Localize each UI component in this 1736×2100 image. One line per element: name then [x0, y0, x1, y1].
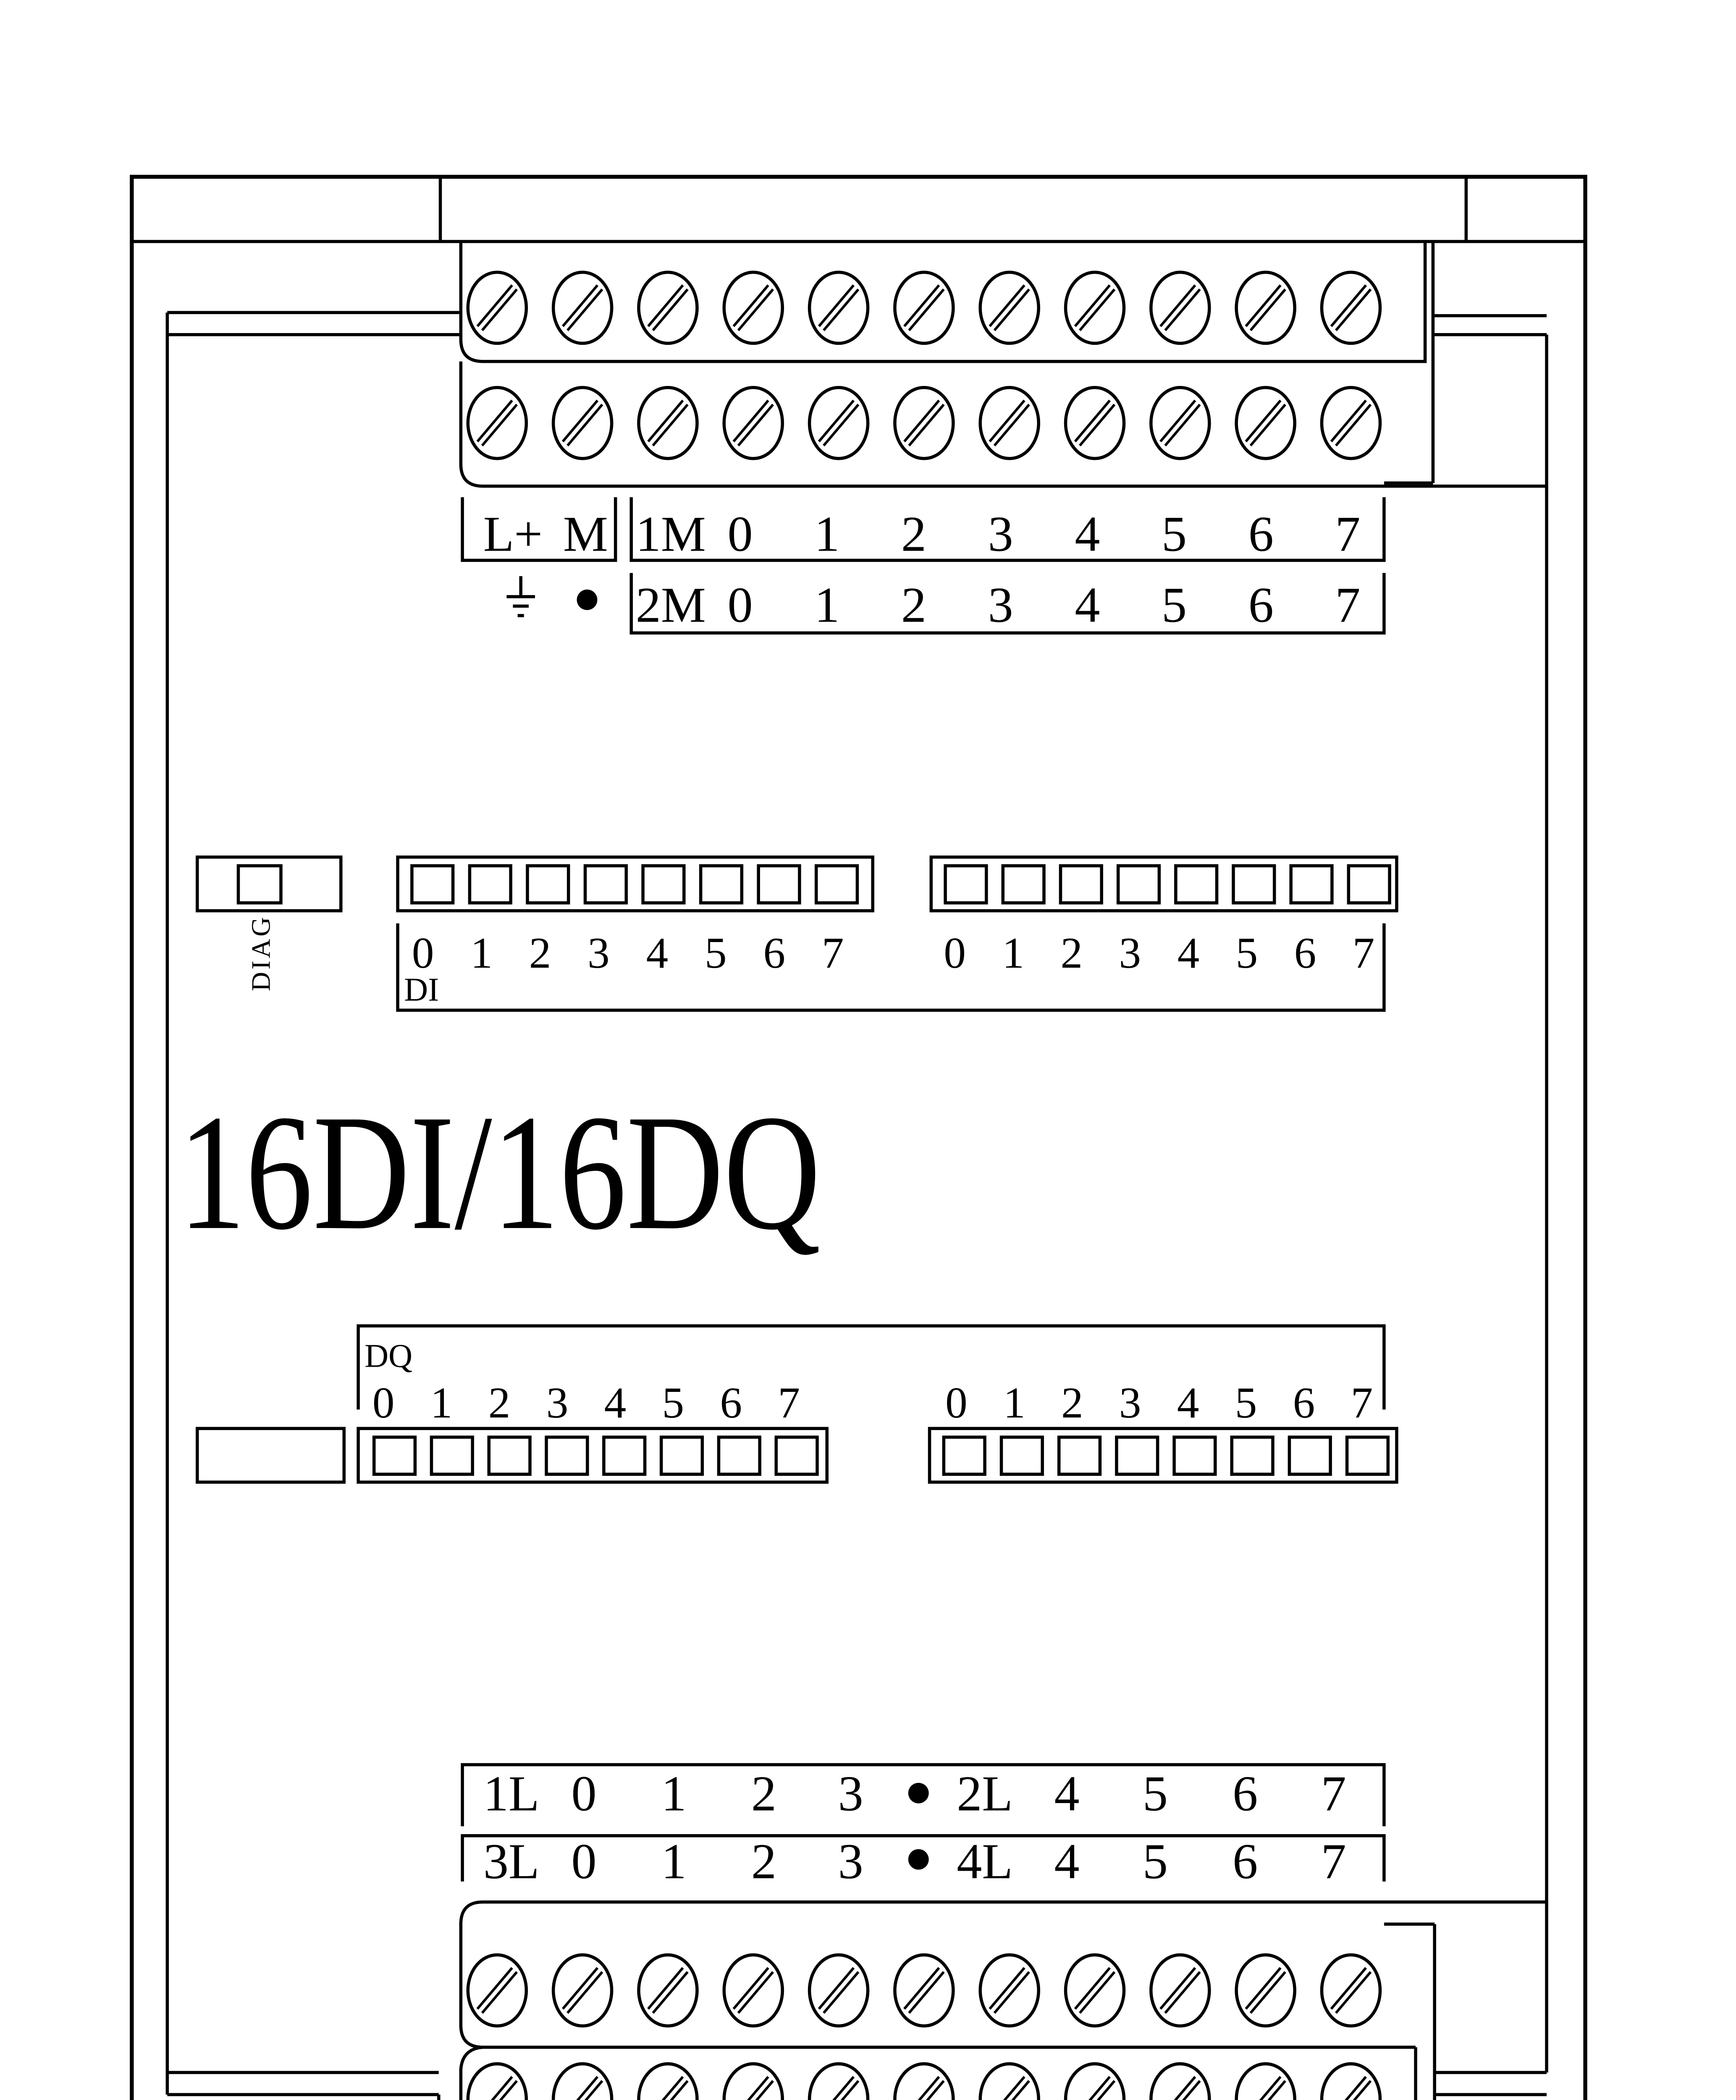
screw-terminal-icon — [468, 2064, 526, 2100]
led-window — [546, 1437, 587, 1474]
di-number: 1 — [1002, 928, 1024, 977]
screw-terminal-icon — [980, 272, 1038, 343]
screw-terminal-icon — [553, 2064, 612, 2100]
led-window — [719, 1437, 760, 1474]
dq-number: 5 — [662, 1378, 684, 1427]
terminal-label-m: M — [563, 507, 608, 562]
dq-blank-box — [197, 1428, 344, 1482]
led-window — [1233, 866, 1274, 903]
screw-terminal-icon — [810, 272, 868, 343]
screw-row-3 — [468, 1955, 1380, 2026]
terminal-number: 2 — [751, 1766, 776, 1822]
terminal-label-2l: 2L — [957, 1766, 1013, 1822]
dq-number: 5 — [1235, 1378, 1257, 1427]
di-number: 5 — [705, 928, 727, 977]
di-number: 7 — [822, 928, 844, 977]
screw-terminal-icon — [639, 388, 697, 459]
terminal-number: 3 — [838, 1834, 863, 1890]
led-window — [1003, 866, 1044, 903]
terminal-label-4l: 4L — [957, 1834, 1013, 1890]
screw-terminal-icon — [980, 1955, 1038, 2026]
led-window — [1174, 1437, 1215, 1474]
terminal-number: 1 — [814, 507, 839, 562]
left-mount-flange-top — [167, 312, 459, 335]
di-number: 1 — [470, 928, 493, 977]
terminal-number: 0 — [571, 1766, 596, 1822]
diag-label: DIAG — [246, 915, 276, 991]
screw-terminal-icon — [1151, 272, 1209, 343]
led-window — [527, 866, 569, 903]
terminal-number: 3 — [988, 577, 1013, 633]
screw-terminal-icon — [1066, 1955, 1124, 2026]
terminal-number: 2 — [901, 577, 926, 633]
dq-number: 0 — [372, 1378, 395, 1427]
terminal-label-1l: 1L — [483, 1766, 540, 1822]
terminal-label-lplus: L+ — [483, 507, 543, 562]
screw-terminal-icon — [1322, 272, 1380, 343]
terminal-number: 7 — [1321, 1766, 1346, 1822]
led-window — [1117, 1437, 1158, 1474]
terminal-number: 6 — [1248, 507, 1274, 562]
screw-terminal-icon — [810, 388, 868, 459]
terminal-number: 4 — [1054, 1766, 1079, 1822]
di-number: 7 — [1353, 928, 1375, 977]
led-window — [1291, 866, 1332, 903]
led-window-group-dq_group1 — [374, 1437, 817, 1474]
right-channel-bottom — [1384, 1924, 1434, 2100]
di-number: 0 — [944, 928, 966, 977]
di-number: 4 — [646, 928, 669, 977]
led-window — [489, 1437, 530, 1474]
terminal-number: 5 — [1143, 1834, 1168, 1890]
screw-terminal-icon — [1066, 2064, 1124, 2100]
led-window — [1118, 866, 1159, 903]
terminal-number: 4 — [1075, 507, 1100, 562]
screw-terminal-icon — [468, 388, 526, 459]
right-mount-flange-bottom — [1434, 2072, 1547, 2095]
screw-terminal-icon — [1322, 1955, 1380, 2026]
terminal-number: 6 — [1248, 577, 1274, 633]
di-number: 3 — [1119, 928, 1141, 977]
screw-terminal-icon — [553, 272, 612, 343]
terminal-number: 0 — [571, 1834, 596, 1890]
screw-terminal-icon — [1236, 1955, 1295, 2026]
led-window — [944, 1437, 985, 1474]
dq-number: 6 — [1293, 1378, 1315, 1427]
terminal-label-3l: 3L — [483, 1834, 540, 1890]
di-number: 5 — [1236, 928, 1258, 977]
junction-dot-icon — [908, 1849, 929, 1870]
led-window — [1348, 866, 1390, 903]
terminal-number: 2 — [901, 507, 926, 562]
screw-terminal-icon — [810, 1955, 868, 2026]
led-window — [1289, 1437, 1330, 1474]
dq-number: 1 — [430, 1378, 453, 1427]
dq-number: 4 — [1177, 1378, 1199, 1427]
terminal-number: 5 — [1162, 507, 1187, 562]
dq-number: 1 — [1003, 1378, 1025, 1427]
terminal-number: 7 — [1335, 507, 1360, 562]
screw-terminal-icon — [639, 272, 697, 343]
led-window — [585, 866, 627, 903]
screw-terminal-icon — [724, 2064, 782, 2100]
screw-terminal-icon — [1322, 2064, 1380, 2100]
screw-terminal-icon — [724, 388, 782, 459]
terminal-number: 5 — [1143, 1766, 1168, 1822]
led-window — [661, 1437, 703, 1474]
di-number: 6 — [763, 928, 785, 977]
dq-number: 3 — [1119, 1378, 1141, 1427]
dq-number: 3 — [546, 1378, 569, 1427]
screw-terminal-icon — [895, 2064, 953, 2100]
screw-terminal-icon — [1066, 272, 1124, 343]
screw-terminal-icon — [980, 388, 1038, 459]
screw-row-1 — [468, 272, 1380, 343]
led-window — [1002, 1437, 1043, 1474]
screw-terminal-icon — [895, 272, 953, 343]
led-window — [604, 1437, 645, 1474]
screw-terminal-icon — [895, 1955, 953, 2026]
terminal-number: 3 — [988, 507, 1013, 562]
screw-row-4 — [468, 2064, 1380, 2100]
terminal-number: 0 — [728, 507, 753, 562]
led-window — [776, 1437, 817, 1474]
dq-number: 7 — [1351, 1378, 1373, 1427]
terminal-cover-top-1 — [461, 241, 1425, 362]
screw-terminal-icon — [639, 2064, 697, 2100]
terminal-number: 3 — [838, 1766, 863, 1822]
terminal-number: 1 — [661, 1766, 687, 1822]
led-window-group-diag — [238, 866, 281, 903]
junction-dot-icon — [908, 1783, 929, 1803]
di-number: 6 — [1294, 928, 1316, 977]
dq-number: 0 — [945, 1378, 968, 1427]
led-window-group-dq_group2 — [944, 1437, 1388, 1474]
led-window-group-di_group2 — [945, 866, 1390, 903]
led-window — [1060, 866, 1101, 903]
terminal-number: 7 — [1321, 1834, 1346, 1890]
led-window — [412, 866, 453, 903]
earth-ground-icon — [506, 576, 535, 616]
terminal-number: 1 — [814, 577, 839, 633]
junction-dot-icon — [577, 590, 598, 610]
di-section-label: DI — [404, 972, 439, 1008]
led-window — [431, 1437, 472, 1474]
screw-terminal-icon — [639, 1955, 697, 2026]
terminal-number: 1 — [661, 1834, 687, 1890]
dq-number: 2 — [488, 1378, 511, 1427]
di-number: 0 — [412, 928, 434, 977]
dq-number-area-border — [358, 1326, 1384, 1410]
screw-terminal-icon — [1236, 272, 1295, 343]
screw-terminal-icon — [724, 272, 782, 343]
screw-terminal-icon — [553, 1955, 612, 2026]
led-window — [469, 866, 511, 903]
led-window — [643, 866, 684, 903]
right-mount-flange-top — [1434, 316, 1547, 335]
led-window — [374, 1437, 415, 1474]
terminal-number: 6 — [1233, 1834, 1258, 1890]
module-top-band — [132, 177, 1585, 241]
module-type-label: 16DI/16DQ — [178, 1081, 821, 1264]
di-number: 4 — [1177, 928, 1200, 977]
terminal-number: 7 — [1335, 577, 1360, 633]
terminal-number: 4 — [1054, 1834, 1079, 1890]
dq-number: 4 — [604, 1378, 627, 1427]
led-window-group-di_group1 — [412, 866, 858, 903]
terminal-number: 4 — [1075, 577, 1100, 633]
led-window — [816, 866, 858, 903]
screw-terminal-icon — [468, 272, 526, 343]
terminal-label-2m: 2M — [636, 577, 706, 633]
screw-terminal-icon — [1151, 388, 1209, 459]
screw-terminal-icon — [810, 2064, 868, 2100]
led-window — [701, 866, 742, 903]
led-window — [1347, 1437, 1388, 1474]
screw-terminal-icon — [1151, 2064, 1209, 2100]
led-window — [1059, 1437, 1100, 1474]
screw-terminal-icon — [1236, 388, 1295, 459]
left-mount-flange-bottom — [167, 2072, 438, 2100]
led-window — [1232, 1437, 1273, 1474]
terminal-number: 5 — [1162, 577, 1187, 633]
terminal-label-1m: 1M — [636, 507, 706, 562]
led-window — [1176, 866, 1217, 903]
led-window — [758, 866, 800, 903]
terminal-number: 0 — [728, 577, 753, 633]
dq-number: 6 — [720, 1378, 742, 1427]
dq-number: 2 — [1061, 1378, 1083, 1427]
screw-terminal-icon — [553, 388, 612, 459]
screw-terminal-icon — [1151, 1955, 1209, 2026]
dq-section-label: DQ — [365, 1338, 412, 1375]
plc-module-wiring-diagram: L+M1M012345672M0123456701234567012345670… — [0, 0, 1736, 2100]
screw-terminal-icon — [724, 1955, 782, 2026]
di-number: 3 — [587, 928, 610, 977]
terminal-number: 6 — [1233, 1766, 1258, 1822]
di-number: 2 — [529, 928, 551, 977]
screw-terminal-icon — [468, 1955, 526, 2026]
screw-terminal-icon — [895, 388, 953, 459]
di-number: 2 — [1060, 928, 1083, 977]
led-window — [238, 866, 281, 903]
terminal-number: 2 — [751, 1834, 776, 1890]
screw-terminal-icon — [1066, 388, 1124, 459]
screw-terminal-icon — [1322, 388, 1380, 459]
dq-number: 7 — [778, 1378, 800, 1427]
screw-terminal-icon — [1236, 2064, 1295, 2100]
screw-row-2 — [468, 388, 1380, 459]
led-window — [945, 866, 986, 903]
screw-terminal-icon — [980, 2064, 1038, 2100]
